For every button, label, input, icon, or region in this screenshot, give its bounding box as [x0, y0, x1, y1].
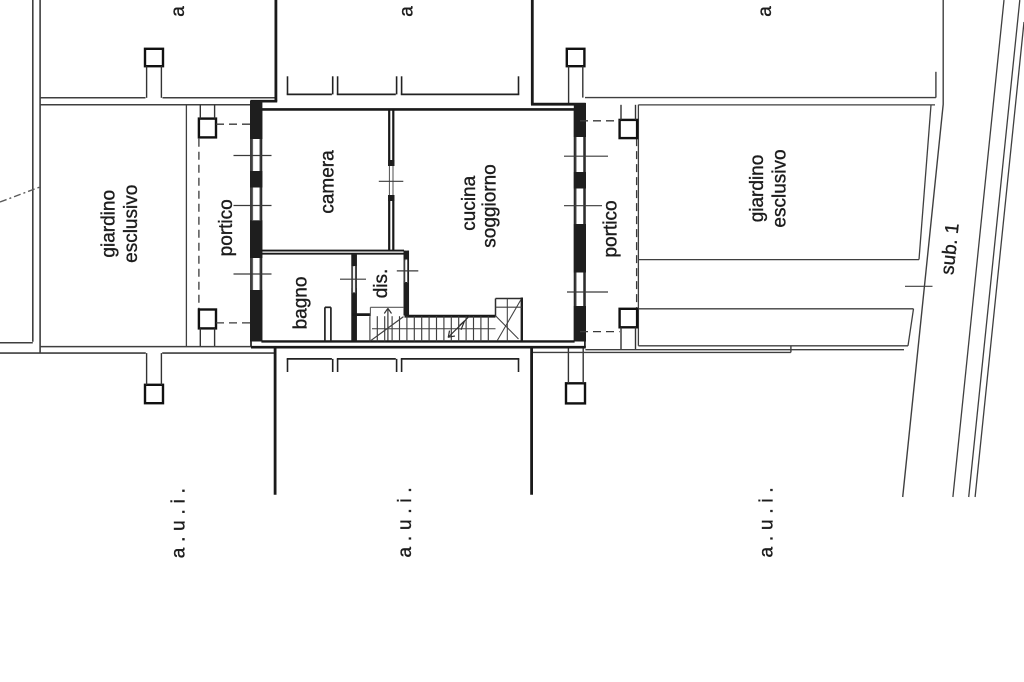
- svg-text:a.u.i.: a.u.i.: [395, 482, 416, 558]
- svg-text:portico: portico: [601, 200, 622, 257]
- svg-text:bagno: bagno: [290, 277, 311, 330]
- svg-text:a.u.i.: a.u.i.: [168, 0, 189, 17]
- svg-text:esclusivo: esclusivo: [121, 185, 142, 263]
- svg-text:esclusivo: esclusivo: [770, 149, 791, 227]
- svg-text:giardino: giardino: [747, 155, 768, 223]
- svg-text:giardino: giardino: [99, 190, 120, 258]
- svg-text:dis.: dis.: [371, 269, 392, 299]
- svg-text:a.u.i.: a.u.i.: [169, 482, 190, 558]
- svg-text:soggiorno: soggiorno: [480, 164, 501, 247]
- svg-text:portico: portico: [216, 199, 237, 256]
- svg-text:cucina: cucina: [459, 175, 480, 230]
- svg-text:a.u.i.: a.u.i.: [756, 482, 777, 558]
- svg-text:a.u.i.: a.u.i.: [397, 0, 418, 17]
- svg-text:camera: camera: [317, 150, 338, 214]
- svg-text:sub. 1: sub. 1: [937, 222, 963, 276]
- svg-text:a.u.i.: a.u.i.: [755, 0, 776, 17]
